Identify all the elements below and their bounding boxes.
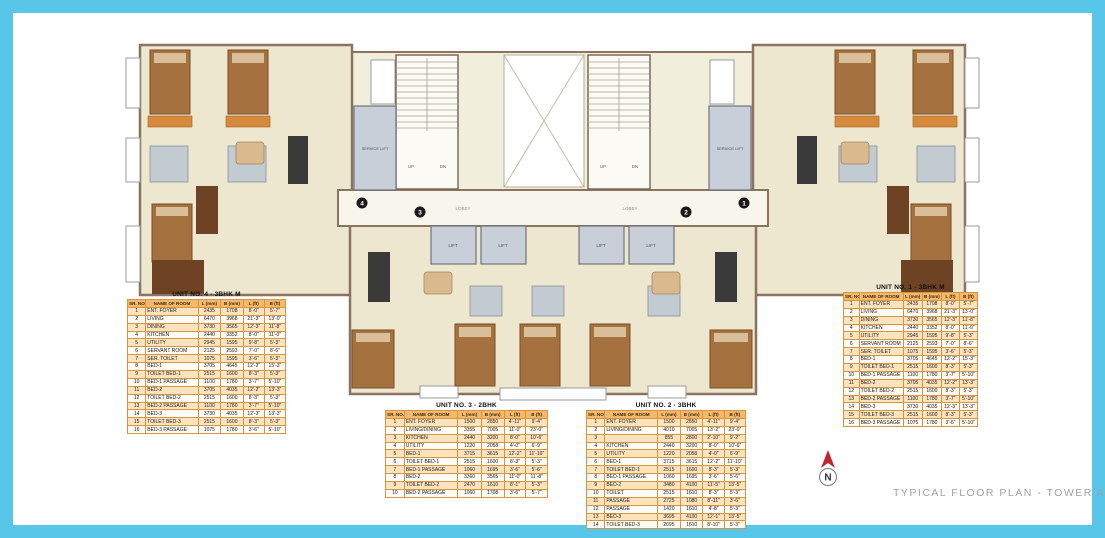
brand-block: CELESTIA SPACES A HEM BHATTAD PROJECT BY… [32,430,212,538]
lift-label: LIFT [498,243,508,248]
unit2-dimensions-table: SR. NO.NAME OF ROOML (mm)B (mm)L (ft)B (… [586,410,746,529]
unit2-dimensions-panel: UNIT NO. 2 - 3BHK SR. NO.NAME OF ROOML (… [586,402,746,529]
unit4-dimensions-table: SR. NO.NAME OF ROOML (mm)B (mm)L (ft)B (… [127,299,286,434]
unit-marker-1: 1 [742,201,746,208]
north-label: N [824,473,831,484]
unit1-table-title: UNIT NO. 1 - 3BHK M [843,284,978,291]
central-void [504,55,584,187]
unit3-dimensions-table: SR. NO.NAME OF ROOML (mm)B (mm)L (ft)B (… [385,410,548,498]
lift-label: LIFT [646,243,656,248]
north-arrow: N [820,450,837,486]
unit2-table-title: UNIT NO. 2 - 3BHK [586,402,746,409]
service-lift-label: SERVICE LIFT [717,146,744,151]
unit1-dimensions-panel: UNIT NO. 1 - 3BHK M SR. NO.NAME OF ROOML… [843,284,978,427]
plan-sheet: UP DN UP DN SERVICE LIFT [0,0,1105,538]
unit-marker-3: 3 [418,210,422,217]
north-arrow-icon [821,450,835,468]
unit3-table-title: UNIT NO. 3 - 2BHK [385,402,548,409]
lift-label: LIFT [596,243,606,248]
stairs-up-label: UP [408,164,414,169]
lobby-label: LOBBY [622,206,637,211]
service-lift-label: SERVICE LIFT [362,146,389,151]
stairs-up-label: UP [600,164,606,169]
staircase-right: UP DN [588,55,650,189]
stairs-dn-label: DN [440,164,447,169]
lobby-corridor [338,190,768,226]
staircase-left: UP DN [396,55,458,189]
sheet-title: TYPICAL FLOOR PLAN - TOWER A [893,487,1105,499]
service-lift-left: SERVICE LIFT [354,106,396,190]
lobby-label: LOBBY [455,206,470,211]
unit4-table-title: UNIT NO. 4 - 3BHK M [127,291,286,298]
celestia-logo-icon [40,430,121,538]
unit-marker-4: 4 [360,201,364,208]
unit4-dimensions-panel: UNIT NO. 4 - 3BHK M SR. NO.NAME OF ROOML… [127,291,286,434]
unit-marker-2: 2 [684,210,688,217]
service-lift-right: SERVICE LIFT [709,106,751,190]
lift-label: LIFT [448,243,458,248]
stairs-dn-label: DN [632,164,639,169]
unit1-dimensions-table: SR. NO.NAME OF ROOML (mm)B (mm)L (ft)B (… [843,292,978,427]
unit3-dimensions-panel: UNIT NO. 3 - 2BHK SR. NO.NAME OF ROOML (… [385,402,548,498]
